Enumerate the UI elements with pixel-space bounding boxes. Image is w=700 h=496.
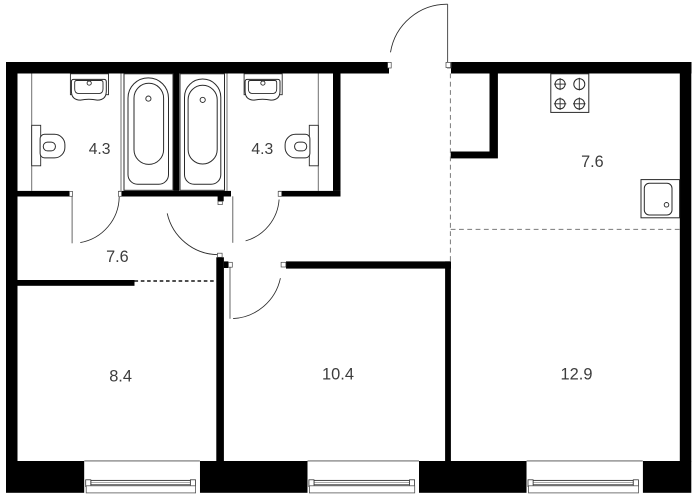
svg-text:4.3: 4.3 <box>251 141 273 158</box>
svg-text:4.3: 4.3 <box>89 141 111 158</box>
svg-text:7.6: 7.6 <box>106 248 129 266</box>
svg-text:7.6: 7.6 <box>581 153 604 171</box>
svg-text:8.4: 8.4 <box>109 367 132 385</box>
svg-text:10.4: 10.4 <box>322 366 354 384</box>
svg-text:12.9: 12.9 <box>561 366 593 384</box>
